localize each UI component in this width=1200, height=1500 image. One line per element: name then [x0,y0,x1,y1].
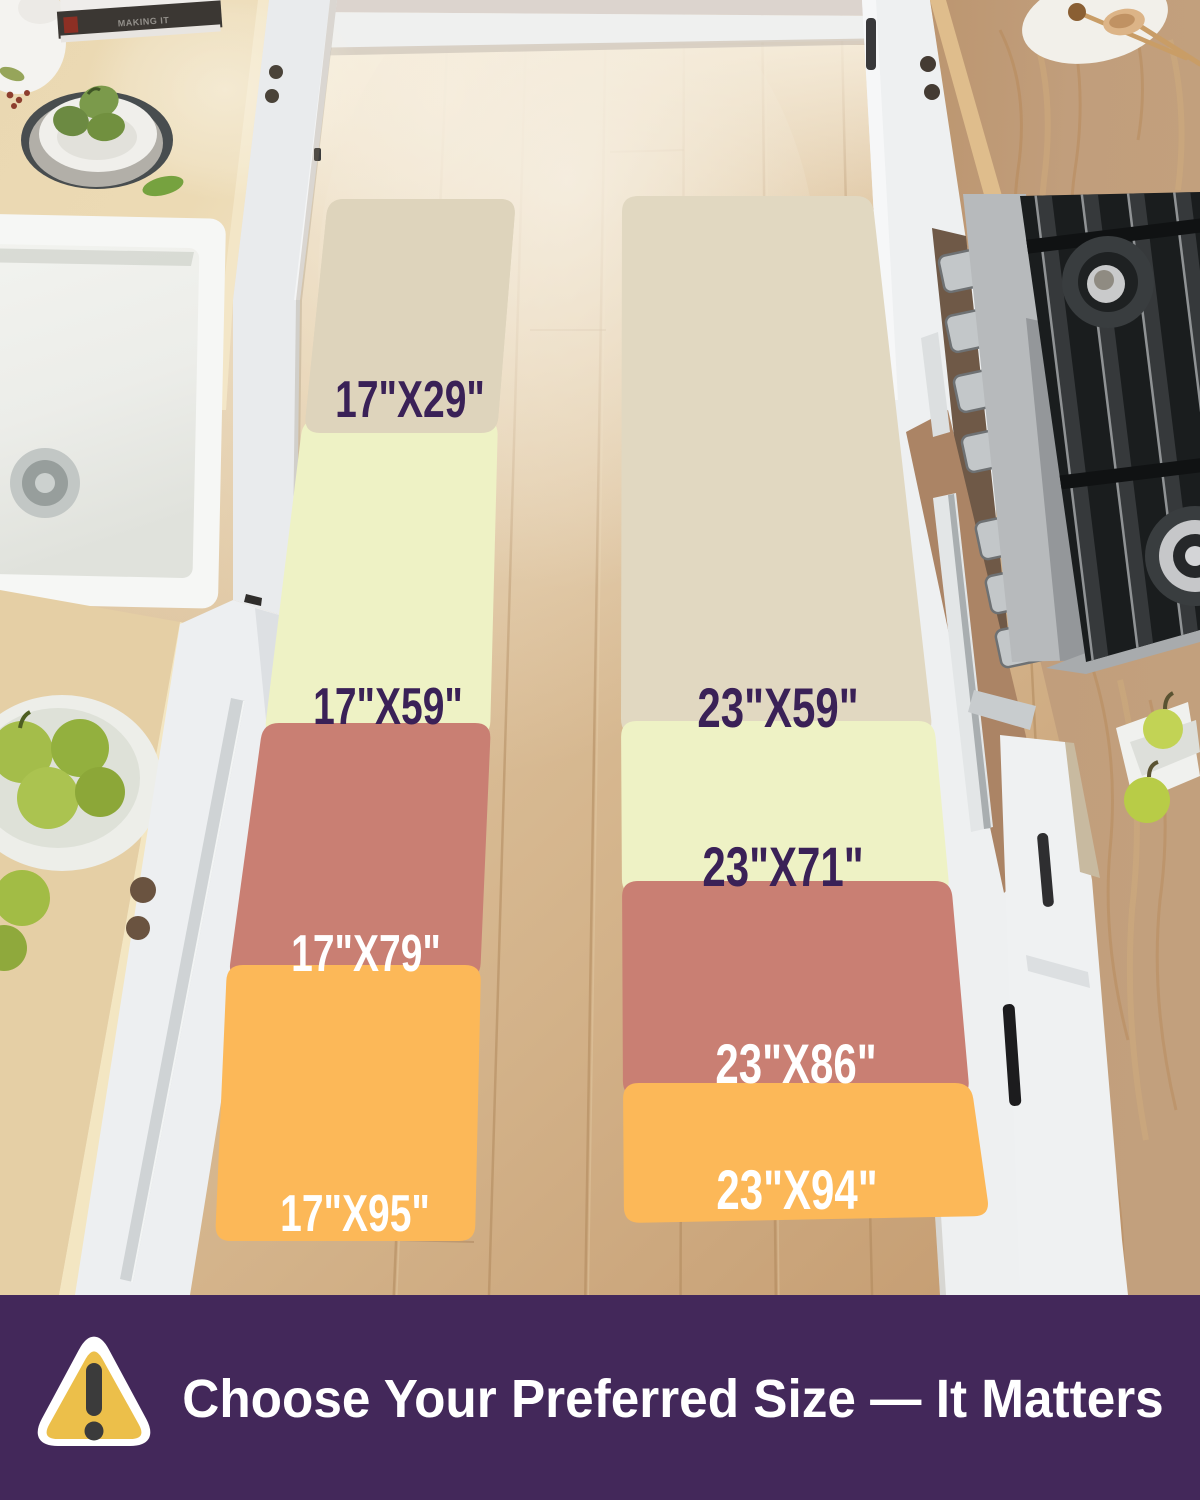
svg-text:17"X79": 17"X79" [291,923,441,982]
svg-text:17"X95": 17"X95" [280,1183,430,1242]
svg-text:17"X59": 17"X59" [313,676,463,735]
svg-text:23"X86": 23"X86" [715,1033,876,1095]
svg-text:23"X59": 23"X59" [697,677,858,739]
svg-text:17"X29": 17"X29" [335,369,485,428]
svg-text:23"X71": 23"X71" [702,836,863,898]
svg-text:Choose Your Preferred Size — I: Choose Your Preferred Size — It Matters [182,1369,1163,1429]
svg-text:23"X94": 23"X94" [716,1159,877,1221]
